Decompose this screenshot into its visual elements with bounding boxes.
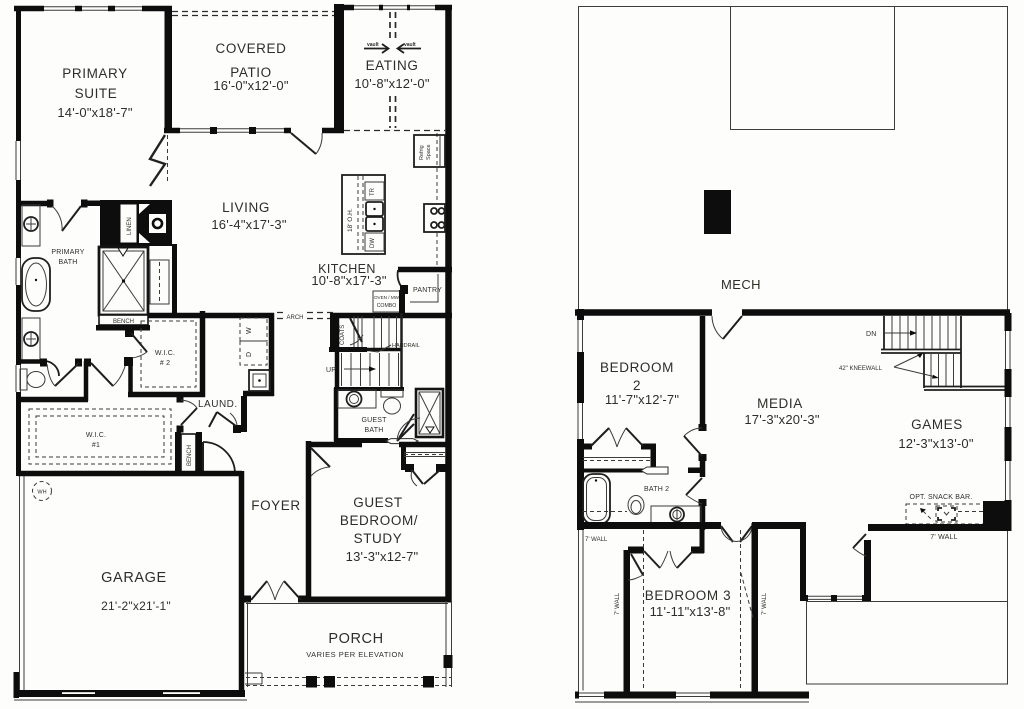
svg-text:LINEN: LINEN — [127, 217, 133, 235]
svg-text:BEDROOM 3: BEDROOM 3 — [645, 588, 731, 603]
svg-text:12'-3"x13'-0": 12'-3"x13'-0" — [898, 436, 974, 451]
svg-text:13'-3"x12-7": 13'-3"x12-7" — [346, 549, 419, 564]
svg-text:11'-7"x12'-7": 11'-7"x12'-7" — [605, 392, 680, 407]
svg-text:BATH: BATH — [59, 259, 78, 266]
svg-text:DW: DW — [370, 238, 376, 248]
svg-text:COVERED: COVERED — [216, 41, 287, 56]
svg-text:10'-8"x17'-3": 10'-8"x17'-3" — [311, 273, 387, 288]
svg-text:Refrig: Refrig — [419, 145, 425, 160]
svg-text:FOYER: FOYER — [251, 498, 301, 513]
svg-text:14'-0"x18'-7": 14'-0"x18'-7" — [57, 105, 133, 120]
svg-text:DN: DN — [866, 331, 877, 338]
svg-text:PRIMARY: PRIMARY — [51, 249, 84, 256]
svg-text:UP: UP — [326, 367, 336, 374]
svg-text:GARAGE: GARAGE — [101, 570, 167, 586]
svg-text:10'-8"x12'-0": 10'-8"x12'-0" — [354, 76, 430, 91]
svg-text:BEDROOM: BEDROOM — [600, 360, 674, 375]
svg-text:GUEST: GUEST — [361, 417, 387, 424]
svg-text:WH: WH — [37, 490, 46, 496]
svg-text:LIVING: LIVING — [222, 200, 270, 215]
svg-text:VARIES PER ELEVATION: VARIES PER ELEVATION — [306, 650, 404, 659]
svg-text:11'-11"x13'-8": 11'-11"x13'-8" — [650, 604, 731, 619]
svg-text:OPT. SNACK BAR.: OPT. SNACK BAR. — [910, 494, 973, 501]
svg-text:42" KNEEWALL: 42" KNEEWALL — [839, 366, 883, 372]
svg-text:D: D — [246, 352, 253, 357]
svg-text:OVEN / MW: OVEN / MW — [374, 295, 400, 300]
svg-text:GAMES: GAMES — [911, 417, 963, 432]
svg-text:#1: #1 — [92, 442, 100, 449]
svg-text:COATS: COATS — [340, 325, 346, 345]
svg-text:vault: vault — [367, 42, 379, 48]
svg-text:W.I.C.: W.I.C. — [155, 350, 175, 357]
svg-text:W: W — [246, 327, 253, 334]
svg-text:SUITE: SUITE — [75, 86, 118, 101]
svg-text:BENCH: BENCH — [113, 319, 134, 325]
svg-text:ARCH: ARCH — [286, 315, 303, 321]
svg-text:HANDRAIL: HANDRAIL — [392, 343, 420, 349]
svg-text:EATING: EATING — [366, 58, 419, 73]
svg-text:BENCH: BENCH — [187, 445, 193, 466]
svg-text:21'-2"x21'-1": 21'-2"x21'-1" — [101, 599, 171, 613]
svg-text:18' O.H.: 18' O.H. — [347, 208, 354, 232]
svg-text:vault: vault — [404, 42, 416, 48]
svg-text:2: 2 — [633, 378, 641, 393]
svg-text:PRIMARY: PRIMARY — [62, 66, 127, 81]
svg-text:BATH 2: BATH 2 — [644, 486, 669, 493]
svg-text:16'-0"x12'-0": 16'-0"x12'-0" — [213, 78, 289, 93]
svg-text:Space: Space — [426, 144, 432, 160]
svg-text:LAUND.: LAUND. — [198, 399, 238, 410]
svg-text:7' WALL: 7' WALL — [762, 592, 768, 615]
svg-text:BEDROOM/: BEDROOM/ — [340, 513, 418, 528]
svg-text:PORCH: PORCH — [328, 631, 383, 647]
svg-text:BATH: BATH — [365, 427, 384, 434]
svg-text:STUDY: STUDY — [354, 531, 403, 546]
svg-text:TR: TR — [370, 187, 376, 196]
svg-text:16'-4"x17'-3": 16'-4"x17'-3" — [211, 217, 287, 232]
svg-text:17'-3"x20'-3": 17'-3"x20'-3" — [744, 412, 820, 427]
svg-text:MEDIA: MEDIA — [757, 396, 803, 411]
svg-text:COMBO: COMBO — [377, 303, 397, 309]
svg-text:MECH: MECH — [721, 277, 761, 292]
svg-text:GUEST: GUEST — [353, 495, 403, 510]
svg-text:# 2: # 2 — [160, 360, 170, 367]
svg-text:W.I.C.: W.I.C. — [86, 432, 106, 439]
svg-text:7' WALL: 7' WALL — [930, 534, 957, 541]
svg-text:7' WALL: 7' WALL — [615, 592, 621, 615]
svg-text:7' WALL: 7' WALL — [585, 537, 608, 543]
